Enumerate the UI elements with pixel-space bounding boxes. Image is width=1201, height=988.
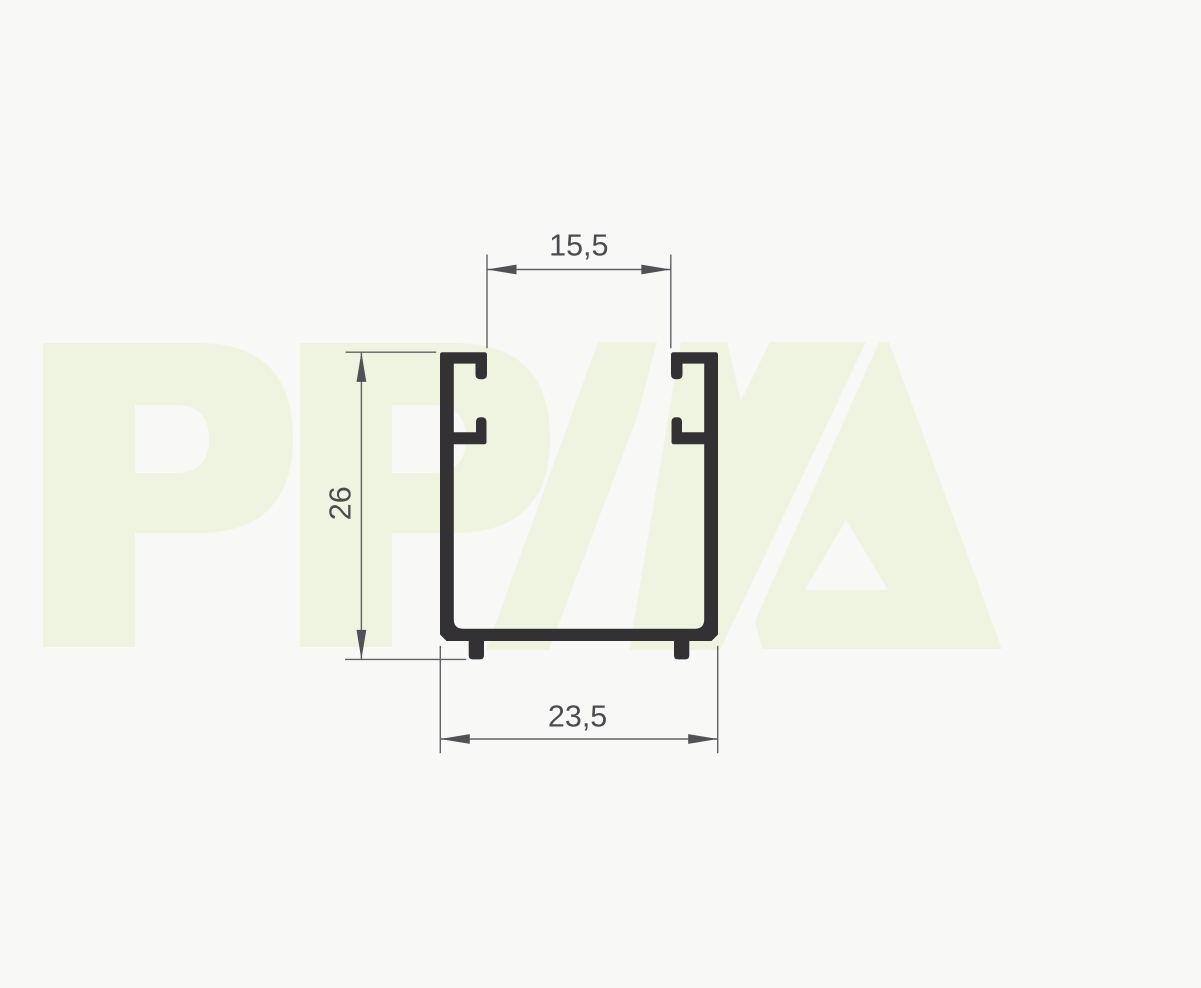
svg-text:23,5: 23,5 [548, 700, 607, 734]
svg-text:26: 26 [324, 486, 358, 520]
svg-text:15,5: 15,5 [549, 228, 608, 262]
